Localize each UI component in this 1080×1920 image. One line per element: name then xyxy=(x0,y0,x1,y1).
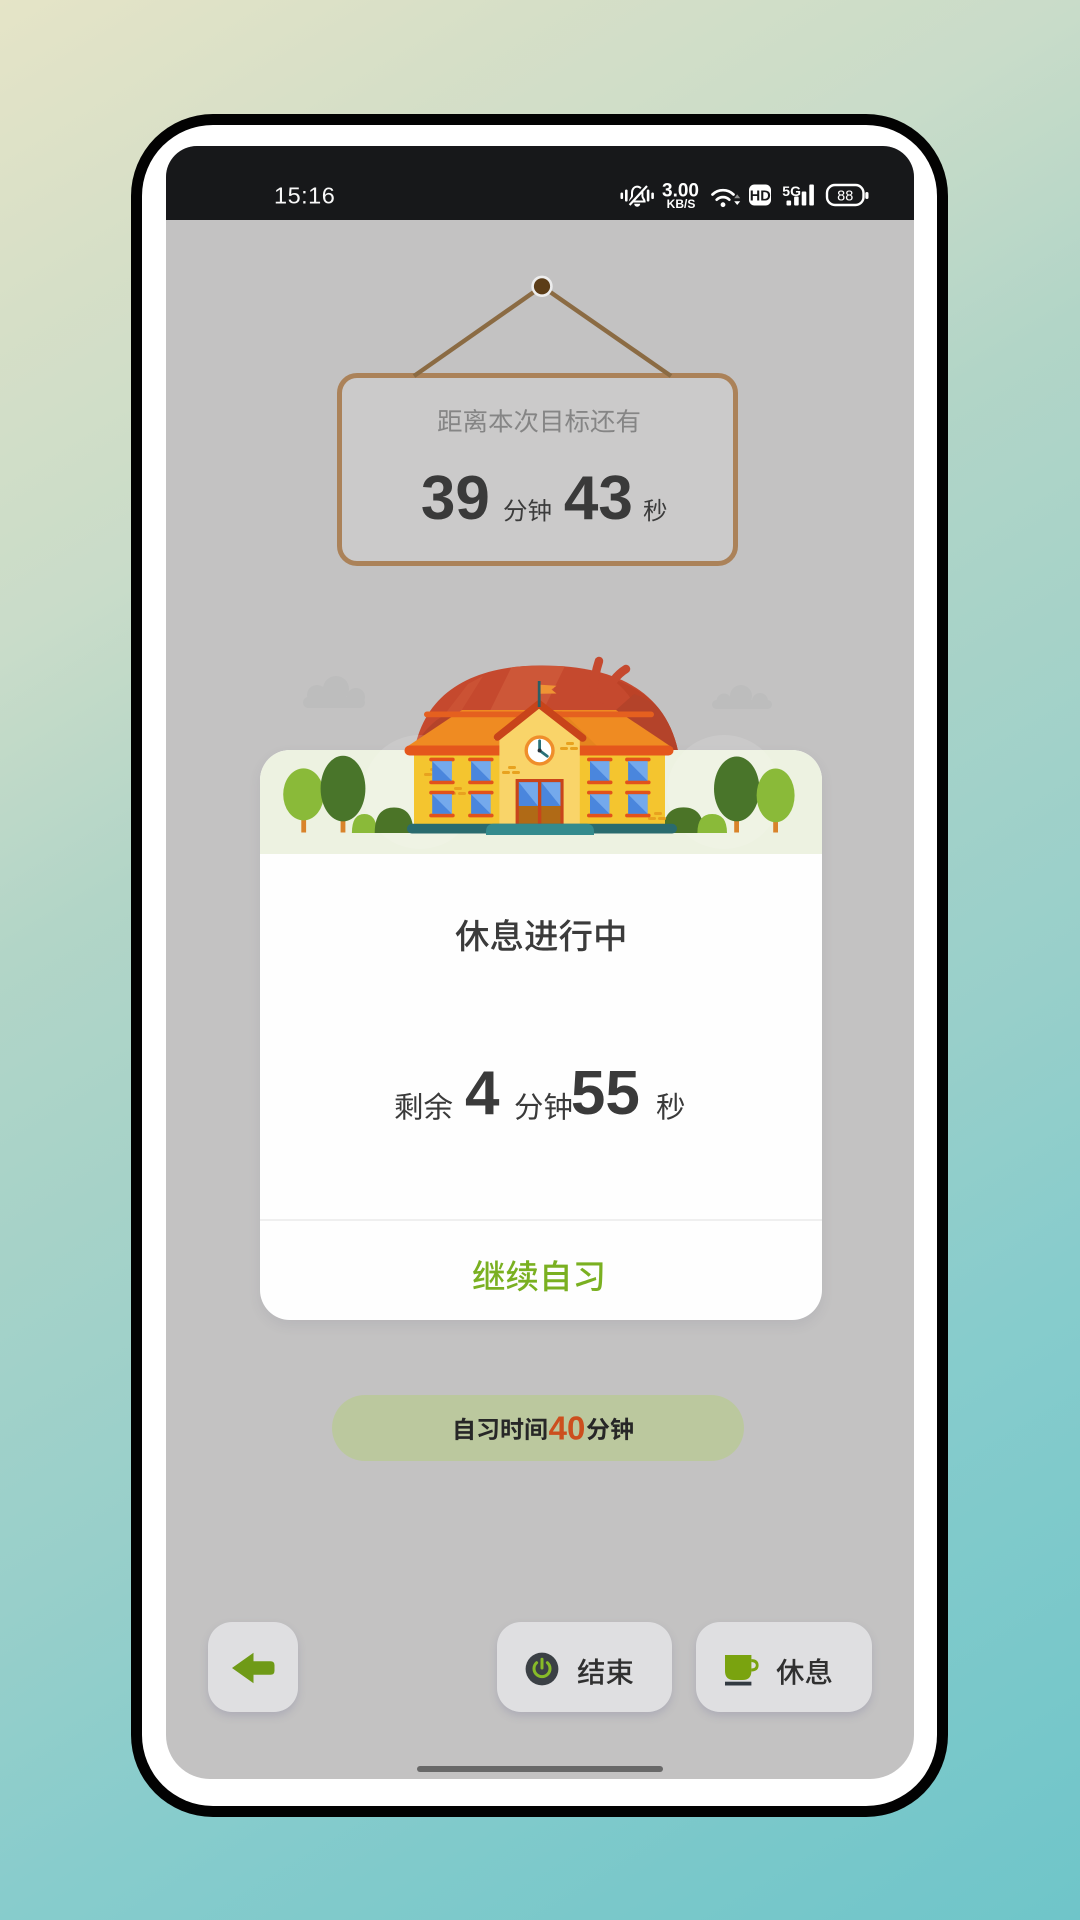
svg-text:4: 4 xyxy=(465,1059,500,1128)
svg-text:55: 55 xyxy=(571,1059,640,1128)
svg-text:15:16: 15:16 xyxy=(274,183,335,209)
svg-text:HD: HD xyxy=(750,189,771,205)
svg-text:KB/S: KB/S xyxy=(667,197,696,211)
svg-text:40: 40 xyxy=(548,1410,585,1447)
svg-text:43: 43 xyxy=(564,464,633,533)
svg-text:39: 39 xyxy=(421,464,490,533)
svg-text:88: 88 xyxy=(837,188,853,204)
svg-text:5G: 5G xyxy=(782,183,801,199)
